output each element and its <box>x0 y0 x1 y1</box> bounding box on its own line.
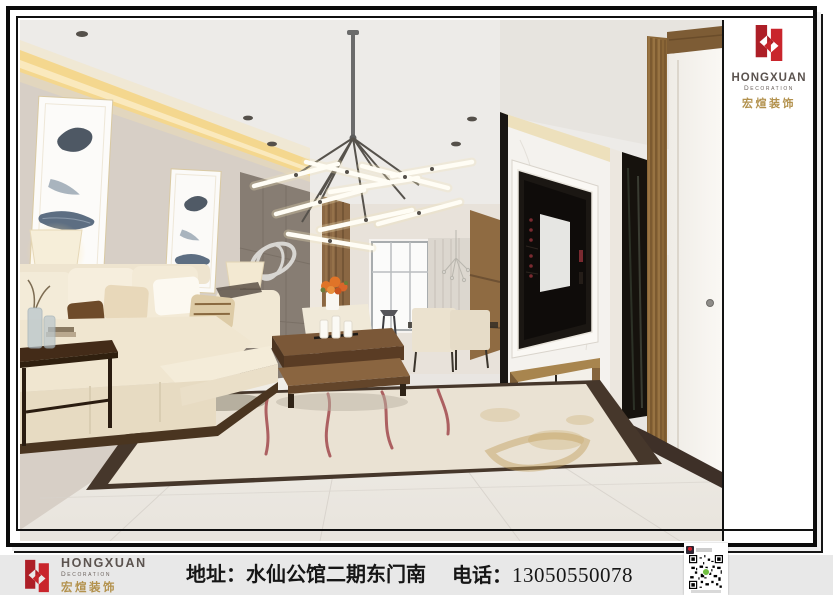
wechat-avatar-icon <box>686 546 694 554</box>
pillow-beige <box>103 285 149 322</box>
brand-name: HONGXUAN <box>726 72 812 84</box>
brand-subtitle: Decoration <box>61 571 147 578</box>
brand-chinese-name: 宏煊装饰 <box>61 579 147 595</box>
living-room-rendering <box>20 20 724 541</box>
brand-logo-footer: HONGXUAN Decoration 宏煊装饰 <box>20 556 147 595</box>
address-label: 地址： <box>186 564 246 586</box>
wechat-nickname-text <box>696 548 712 552</box>
wood-pillar <box>647 36 667 450</box>
phone-number: 13050550078 <box>512 563 633 587</box>
door-handle <box>707 300 714 307</box>
hongxuan-h-monogram-icon <box>20 559 54 593</box>
phone-label: 电话： <box>452 565 512 587</box>
promo-poster: HONGXUAN Decoration 宏煊装饰 HONGXUAN Decora… <box>0 0 833 595</box>
hongxuan-h-monogram-icon <box>750 24 788 62</box>
brand-logo-top-right: HONGXUAN Decoration 宏煊装饰 <box>726 24 812 111</box>
brand-subtitle: Decoration <box>726 85 812 92</box>
white-door <box>667 26 722 480</box>
wechat-qr-card <box>684 543 728 595</box>
phone-text: 电话：13050550078 <box>452 555 633 595</box>
mirror-strip <box>610 148 647 424</box>
qr-caption-text <box>691 590 721 593</box>
flower-vase <box>326 292 339 310</box>
interior-scene-illustration <box>20 20 722 541</box>
wechat-qr-code-icon <box>687 555 725 589</box>
brand-chinese-name: 宏煊装饰 <box>726 95 812 111</box>
address-text: 地址：水仙公馆二期东门南 <box>186 555 426 595</box>
address-value: 水仙公馆二期东门南 <box>246 564 426 586</box>
brand-name: HONGXUAN <box>61 556 147 570</box>
